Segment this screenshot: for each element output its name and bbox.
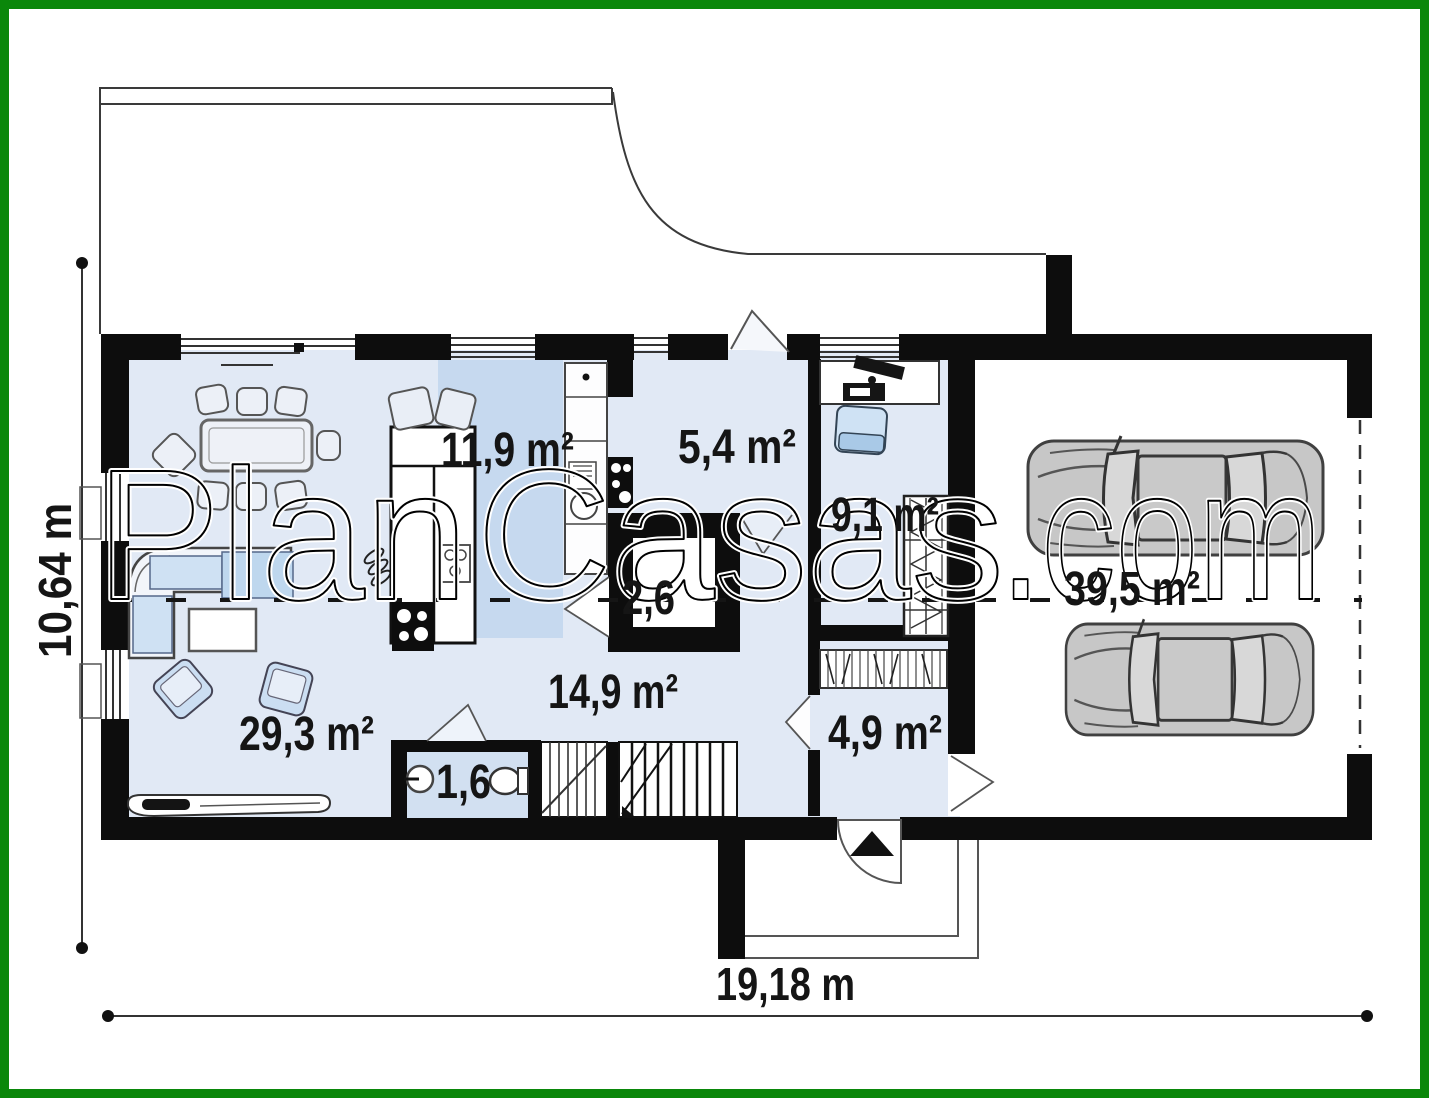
svg-text:19,18 m: 19,18 m: [716, 958, 855, 1010]
svg-text:9,1 m²: 9,1 m²: [831, 489, 939, 542]
svg-text:2,6: 2,6: [622, 572, 675, 625]
svg-text:10,64 m: 10,64 m: [29, 503, 81, 658]
svg-text:14,9 m²: 14,9 m²: [548, 666, 678, 719]
svg-text:5,4 m²: 5,4 m²: [678, 421, 796, 474]
svg-text:29,3 m²: 29,3 m²: [239, 708, 374, 761]
svg-text:11,9 m²: 11,9 m²: [441, 424, 574, 477]
svg-text:Plan: Plan: [96, 432, 468, 639]
svg-text:39,5 m²: 39,5 m²: [1064, 563, 1200, 616]
svg-text:1,6: 1,6: [436, 756, 491, 809]
svg-text:4,9 m²: 4,9 m²: [828, 707, 942, 760]
